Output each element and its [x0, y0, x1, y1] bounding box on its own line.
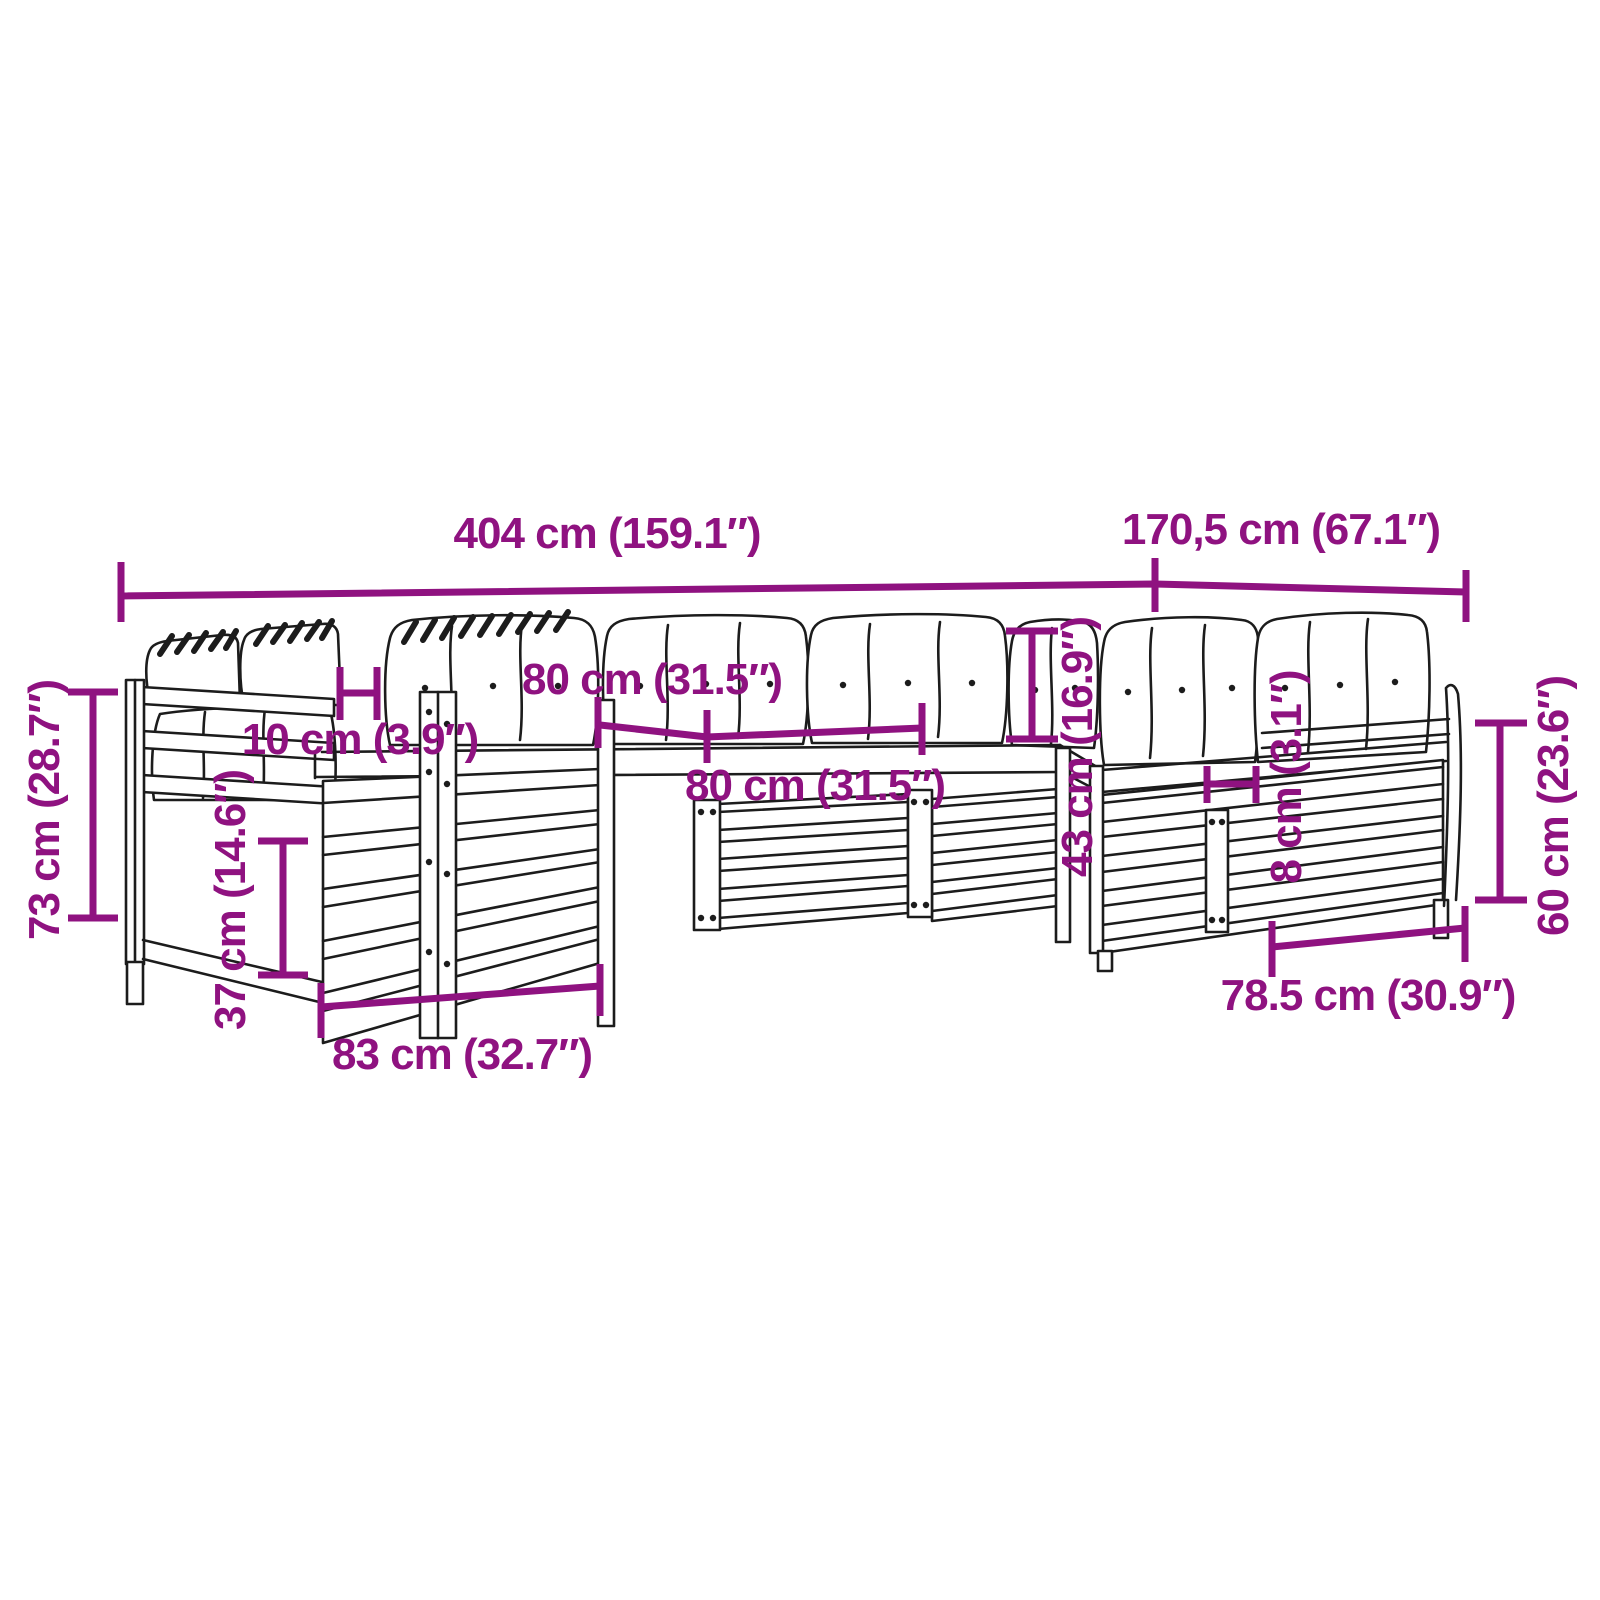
dim-label-armrest-top-width: 10 cm (3.9″) — [242, 718, 479, 762]
dim-label-wing-depth: 170,5 cm (67.1″) — [1122, 508, 1440, 552]
dim-label-back-height: 60 cm (23.6″) — [1532, 676, 1576, 936]
dimension-diagram: 404 cm (159.1″) 170,5 cm (67.1″) 80 cm (… — [0, 0, 1600, 1600]
dim-label-base-height: 37 cm (14.6″) — [209, 770, 253, 1030]
dim-label-seat-height: 43 cm (16.9″) — [1056, 617, 1100, 877]
dim-label-total-width: 404 cm (159.1″) — [454, 512, 761, 556]
dim-label-back-cushion-width: 80 cm (31.5″) — [522, 658, 782, 702]
dim-label-slat-width: 8 cm (3.1″) — [1265, 670, 1309, 883]
dim-label-seat-module-width: 80 cm (31.5″) — [685, 764, 945, 808]
dim-label-seat-depth-left: 83 cm (32.7″) — [332, 1033, 592, 1077]
dim-label-seat-depth-right: 78.5 cm (30.9″) — [1221, 974, 1516, 1018]
dim-label-total-height: 73 cm (28.7″) — [23, 680, 67, 940]
